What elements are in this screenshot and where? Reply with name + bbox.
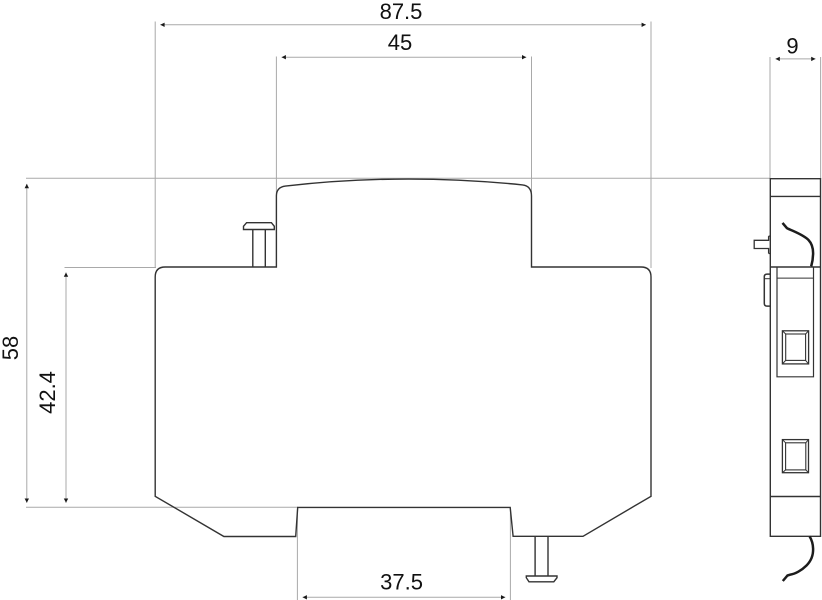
svg-text:9: 9 [786,34,798,59]
svg-text:87.5: 87.5 [380,0,423,24]
svg-text:45: 45 [388,30,412,55]
svg-text:58: 58 [0,336,23,360]
svg-text:42.4: 42.4 [35,371,60,414]
svg-text:37.5: 37.5 [380,569,423,594]
